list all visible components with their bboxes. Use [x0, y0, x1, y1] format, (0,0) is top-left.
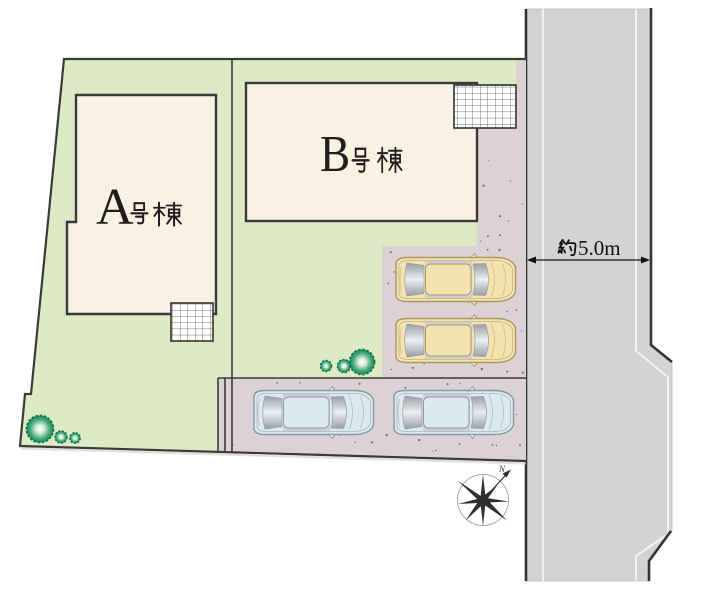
svg-text:B: B: [320, 125, 350, 183]
svg-text:N: N: [498, 464, 506, 474]
svg-text:A: A: [96, 179, 134, 236]
svg-text:5.0m: 5.0m: [578, 236, 621, 260]
